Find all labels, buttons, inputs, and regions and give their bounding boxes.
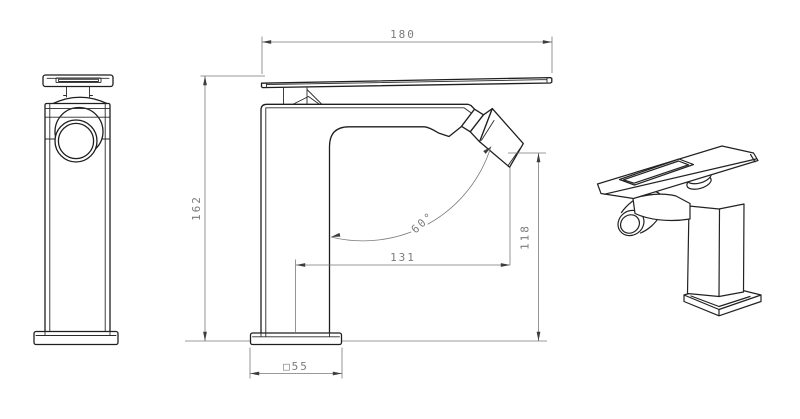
dim-label-body-height: 162 [190, 195, 203, 221]
dim-label-base-size: □55 [283, 360, 309, 373]
column-3d [688, 204, 745, 297]
dimension-spout-reach: 131 [296, 168, 511, 333]
side-view-drawing: 180 162 131 118 [185, 28, 552, 379]
dimension-outlet-height: 118 [508, 153, 546, 341]
lever-stem [284, 87, 322, 104]
aerator-inner-circle [58, 123, 93, 158]
arm-3d [633, 194, 690, 220]
perspective-view-drawing [598, 146, 762, 316]
dimension-outlet-angle: 60° [331, 145, 493, 241]
body-outer-outline [261, 104, 475, 333]
dim-label-outlet-angle: 60° [409, 209, 437, 236]
lever-outline [262, 78, 552, 88]
handle-stem [64, 87, 93, 97]
faucet-technical-drawing: 180 162 131 118 [0, 0, 800, 419]
body-inner-top-line [266, 108, 472, 333]
base-plate-outline-side [251, 333, 342, 345]
front-view-drawing [34, 75, 118, 345]
dim-label-total-length: 180 [390, 28, 416, 41]
dimension-body-height: 162 [190, 76, 265, 341]
dimension-total-length: 180 [262, 28, 552, 74]
dim-label-spout-reach: 131 [390, 251, 416, 264]
column-3d-front-edge [719, 209, 720, 297]
handle-bar-outline [43, 75, 113, 87]
technical-drawing-page: 180 162 131 118 [0, 0, 800, 419]
dim-label-outlet-height: 118 [519, 224, 532, 250]
dimension-base-size: □55 [250, 348, 342, 379]
base-plate-outline [34, 332, 118, 345]
body-underside-outline [330, 127, 462, 333]
